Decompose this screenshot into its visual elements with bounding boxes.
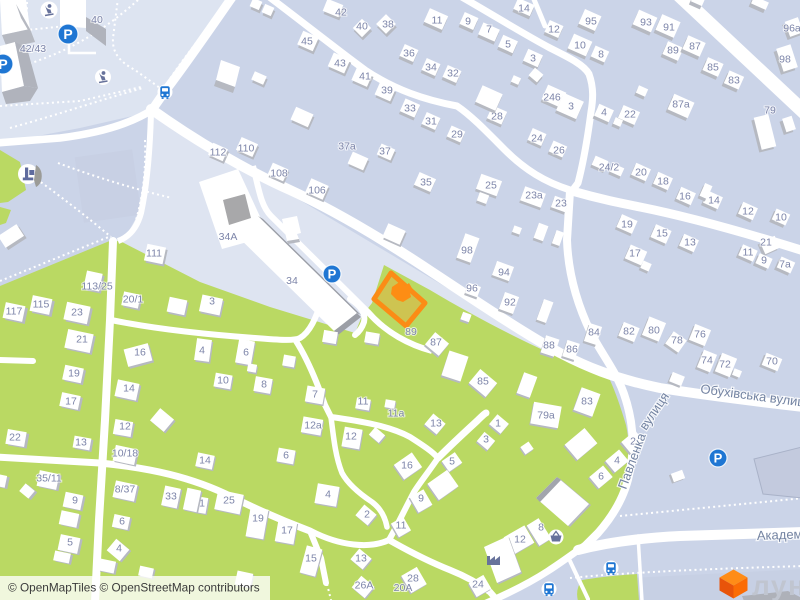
svg-text:94: 94 [498,267,510,279]
svg-text:12: 12 [119,421,131,433]
svg-text:113/25: 113/25 [81,281,112,293]
svg-text:7: 7 [486,24,492,36]
svg-text:20/1: 20/1 [123,294,144,306]
svg-text:89: 89 [667,45,679,57]
svg-text:6: 6 [598,471,604,483]
svg-text:1: 1 [495,418,501,430]
svg-text:8: 8 [598,49,604,61]
svg-text:20А: 20А [394,582,413,594]
svg-text:3: 3 [209,296,215,308]
svg-text:86: 86 [566,344,578,356]
svg-text:17: 17 [281,525,293,537]
svg-text:P: P [328,267,337,282]
svg-text:106: 106 [308,185,326,197]
svg-text:45: 45 [301,36,313,48]
svg-text:16: 16 [134,347,146,359]
svg-text:18: 18 [657,176,669,188]
svg-text:7a: 7a [779,259,791,271]
svg-text:108: 108 [270,168,288,180]
svg-text:117: 117 [6,306,23,318]
svg-text:79a: 79a [537,410,555,422]
svg-text:83: 83 [728,75,740,87]
svg-text:3: 3 [483,434,489,446]
svg-text:17: 17 [629,248,641,260]
svg-text:лун: лун [752,570,800,600]
svg-text:12: 12 [742,206,754,218]
svg-text:25: 25 [485,180,497,192]
svg-text:22: 22 [624,109,636,121]
svg-text:31: 31 [425,116,437,128]
svg-text:98: 98 [461,245,473,257]
svg-text:40: 40 [91,14,103,26]
svg-text:26A: 26A [355,580,374,592]
svg-text:3: 3 [568,101,574,113]
svg-text:42/43: 42/43 [20,43,46,55]
svg-text:14: 14 [518,3,530,15]
svg-text:23a: 23a [525,190,543,202]
svg-text:11a: 11a [388,408,405,420]
svg-text:33: 33 [165,491,177,503]
svg-text:14: 14 [123,383,135,395]
svg-text:3: 3 [530,53,536,65]
svg-text:80: 80 [648,325,660,337]
svg-text:13: 13 [684,237,696,249]
svg-text:12: 12 [548,24,560,36]
svg-text:7: 7 [312,389,318,401]
svg-text:39: 39 [381,85,393,97]
svg-text:6: 6 [119,516,125,528]
svg-text:11: 11 [743,247,754,259]
svg-text:24: 24 [472,579,484,591]
svg-text:P: P [714,451,723,466]
svg-text:98: 98 [779,54,791,66]
svg-text:Академіка: Академіка [757,526,800,543]
svg-text:92: 92 [504,297,516,309]
svg-text:41: 41 [359,71,371,83]
svg-text:11: 11 [396,520,407,532]
svg-text:21: 21 [760,237,772,249]
svg-text:4: 4 [601,107,607,119]
svg-text:23: 23 [555,198,567,210]
svg-text:89: 89 [405,326,417,338]
svg-text:111: 111 [146,248,162,260]
svg-text:2: 2 [364,509,370,521]
svg-text:5: 5 [449,456,455,468]
svg-text:4: 4 [116,543,122,555]
svg-text:34: 34 [425,62,437,74]
svg-text:95: 95 [585,16,597,28]
svg-text:10: 10 [574,40,586,52]
svg-text:76: 76 [694,329,706,341]
svg-text:6: 6 [243,347,249,359]
svg-text:© OpenMapTiles © OpenStreetMap: © OpenMapTiles © OpenStreetMap contribut… [8,581,260,595]
svg-text:87a: 87a [672,99,690,111]
svg-text:40: 40 [356,21,368,33]
svg-text:17: 17 [65,396,77,408]
svg-text:13: 13 [75,437,87,449]
svg-text:8: 8 [261,379,267,391]
svg-text:4: 4 [199,345,205,357]
svg-text:10: 10 [217,375,229,387]
svg-text:35: 35 [420,177,432,189]
svg-text:23: 23 [71,307,83,319]
svg-text:19: 19 [621,219,633,231]
svg-text:91: 91 [663,22,675,34]
svg-text:14: 14 [708,195,720,207]
svg-text:12: 12 [345,431,357,443]
svg-text:84: 84 [588,327,600,339]
svg-text:33: 33 [404,103,416,115]
svg-text:87: 87 [430,337,442,349]
svg-text:9: 9 [465,16,471,28]
svg-text:93: 93 [640,17,652,29]
svg-text:5: 5 [505,39,511,51]
svg-text:74: 74 [701,355,713,367]
svg-text:6: 6 [283,450,289,462]
svg-text:96a: 96a [783,23,800,35]
svg-text:85: 85 [477,376,489,388]
svg-text:11: 11 [432,15,443,27]
svg-text:16: 16 [401,460,413,472]
svg-text:85: 85 [707,62,719,74]
svg-text:13: 13 [355,553,367,565]
svg-text:10: 10 [775,212,787,224]
svg-text:P: P [63,26,72,42]
svg-text:78: 78 [671,335,683,347]
svg-text:9: 9 [72,495,78,507]
svg-text:26: 26 [553,145,565,157]
svg-text:37a: 37a [338,141,356,153]
svg-text:70: 70 [766,356,778,368]
svg-text:32: 32 [447,68,459,80]
svg-text:14: 14 [199,455,211,467]
svg-text:29: 29 [451,129,463,141]
svg-text:10/18: 10/18 [112,448,138,460]
svg-text:25: 25 [223,495,235,507]
svg-text:87: 87 [689,41,701,53]
svg-text:13: 13 [430,418,442,430]
svg-text:24: 24 [531,133,543,145]
svg-text:36: 36 [403,48,415,60]
svg-text:11: 11 [358,396,369,408]
svg-text:12: 12 [514,534,526,546]
svg-text:38: 38 [382,19,394,31]
svg-text:P: P [0,56,8,72]
svg-text:19: 19 [68,368,80,380]
svg-text:21: 21 [76,334,88,346]
svg-text:34: 34 [286,275,298,287]
svg-text:15: 15 [305,553,317,565]
svg-text:115: 115 [33,299,50,311]
svg-text:112: 112 [210,147,227,159]
svg-text:35/11: 35/11 [36,473,62,485]
svg-text:4: 4 [325,489,331,501]
svg-text:19: 19 [252,513,264,525]
svg-text:15: 15 [656,228,668,240]
svg-text:43: 43 [334,58,346,70]
svg-text:8: 8 [538,522,544,534]
svg-text:24/2: 24/2 [599,162,620,174]
svg-text:82: 82 [623,326,635,338]
svg-text:16: 16 [679,191,691,203]
svg-text:110: 110 [238,143,255,155]
svg-text:8/37: 8/37 [115,484,136,496]
svg-text:20: 20 [635,167,647,179]
svg-text:12a: 12a [304,420,322,432]
svg-text:5: 5 [67,537,73,549]
svg-text:4: 4 [614,455,620,467]
svg-text:72: 72 [719,359,731,371]
svg-text:9: 9 [761,255,767,267]
svg-text:96: 96 [466,283,478,295]
svg-text:37: 37 [379,146,391,158]
svg-text:83: 83 [581,396,593,408]
svg-text:9: 9 [418,493,424,505]
svg-text:88: 88 [543,340,555,352]
svg-text:79: 79 [764,105,776,117]
svg-text:22: 22 [9,432,21,444]
svg-text:42: 42 [335,7,347,19]
svg-text:246: 246 [543,92,561,104]
